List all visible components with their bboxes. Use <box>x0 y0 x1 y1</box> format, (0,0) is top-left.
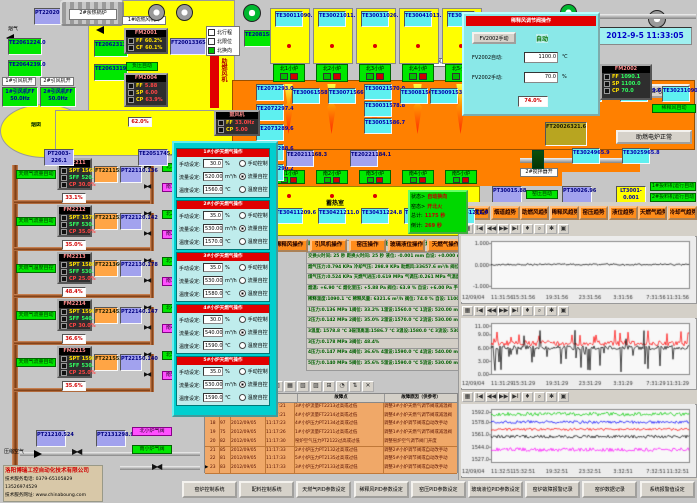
status-value: 269 秒 <box>425 222 442 232</box>
manual-setpoint-input[interactable]: 30.0 <box>203 315 223 324</box>
readout-row: 5压力:0.140 MPa 5阀位: 35.6% 5温设:1590.0 ℃ 5流… <box>306 359 463 371</box>
pt2003-tag: PT2003-226.1 <box>44 149 74 166</box>
gas-valve-output: 35.6% <box>62 381 86 391</box>
gas-valve-south[interactable]: ▶◀ <box>144 184 149 190</box>
radio-temp-auto[interactable]: 温度自控 <box>239 342 268 349</box>
radio-flow-auto[interactable]: 流量自控 <box>239 329 268 336</box>
chart-toolbar-icon[interactable]: ⌕ <box>534 306 545 316</box>
temp-setpoint-input[interactable]: 1560.0 <box>203 185 223 194</box>
chart-toolbar-icon[interactable]: ◀◀ <box>486 306 497 316</box>
gas-pt-tag: PT22130.178 <box>120 260 142 277</box>
port-label: 北4小炉 <box>403 65 433 73</box>
status-key: 总计: <box>411 212 423 222</box>
flow-setpoint-input[interactable]: 540.00 <box>203 328 223 337</box>
te-tag: TE2064239.0 <box>8 60 42 77</box>
chart-toolbar-icon[interactable]: ▣ <box>558 392 569 402</box>
legend-indicator <box>208 38 215 45</box>
gas-valve-north[interactable]: ▶◀ <box>144 305 149 311</box>
legend-label: 北行程 <box>217 29 232 36</box>
trend-button[interactable]: 冷却气趋势 <box>668 206 697 220</box>
radio-manual-control[interactable]: 手动控制 <box>239 316 268 323</box>
temp-setpoint-input[interactable]: 1590.0 <box>203 341 223 350</box>
compressed-air-pipe <box>20 452 200 456</box>
gas-ft-tag: FT2211557.04 <box>94 166 118 183</box>
reversal-status-panel: 状态> 自动换向 窑态> 开北火 总计: 1175 秒 倒计: 269 秒 <box>408 190 468 234</box>
nav-button[interactable]: 稀释风PID参数设定 <box>354 481 409 498</box>
chart-toolbar-icon[interactable]: ◀◀ <box>486 392 497 402</box>
status-key: 倒计: <box>411 222 423 232</box>
radio-manual-control[interactable]: 手动控制 <box>239 368 268 375</box>
burner-popup-section: 1#小炉天燃气操作 手动设定: 30.0 % 流量设定: 520.00 m³/h… <box>176 148 270 198</box>
lt3001-tag: LT3001-0.001 <box>616 186 646 203</box>
nav-button[interactable]: 窑炉控制系统 <box>182 481 237 498</box>
radio-flow-auto[interactable]: 流量自控 <box>239 381 268 388</box>
fm2004-controller: FM2004 FF5.88SP6.00CP63.9% <box>124 73 168 107</box>
port-indicator-green[interactable] <box>324 177 331 183</box>
chart-toolbar-icon[interactable]: ♦ <box>522 392 533 402</box>
alarm-toolbar-icon[interactable]: ▧ <box>297 381 309 392</box>
legend-indicator <box>208 29 215 36</box>
crown-te-tag: TE30081567.5 <box>400 88 428 104</box>
port-indicator-red[interactable] <box>376 73 384 80</box>
feeder-auto-label: 2#投料机运行自动 <box>650 193 696 202</box>
crown-te-tag: TE30031578.8 <box>364 101 392 117</box>
fan-run-label: 1#引风机开 <box>2 77 36 86</box>
alarm-header-fault: 故障点 <box>298 394 385 402</box>
flue-damper-position: 62.0% <box>128 117 152 127</box>
air-valve[interactable]: ▶◀ <box>152 463 160 471</box>
compressed-air-label: 压缩空气 <box>4 448 24 455</box>
fan-run-label: 2#引风机开 <box>40 77 74 86</box>
section-title: 5#小炉天燃气操作 <box>177 357 269 365</box>
right-te-tag: TE3024965.9 <box>572 148 600 164</box>
radio-temp-auto[interactable]: 温度自控 <box>239 394 268 401</box>
te2022-tag: TE20221184.1 <box>350 150 378 167</box>
radio-manual-control[interactable]: 手动控制 <box>239 212 268 219</box>
trend-button[interactable]: 烟道趋势 <box>491 206 520 220</box>
air-valve[interactable]: ▶◀ <box>72 448 80 456</box>
fv2002-auto-status: 自动 <box>536 34 548 43</box>
te-tag: TE2061224.0 <box>8 38 42 55</box>
gas-valve-output: 48.4% <box>62 287 86 297</box>
port-indicator-green[interactable] <box>453 177 460 183</box>
chart-toolbar-icon[interactable]: ✱ <box>546 306 557 316</box>
gas-mode-label: 天燃气流量自动 <box>16 311 56 320</box>
chart-toolbar-icon[interactable]: ▶▶ <box>498 224 509 234</box>
chart-toolbar-icon[interactable]: ◀◀ <box>486 224 497 234</box>
chart-toolbar-icon[interactable]: ▶Ⅰ <box>510 392 521 402</box>
chart-toolbar-icon[interactable]: ✱ <box>546 224 557 234</box>
nav-button[interactable]: 窑压PID参数设定 <box>411 481 466 498</box>
gas-fm-controller: FM2212 SPT1570.0 SFF530.00 CP35.0% <box>57 205 92 237</box>
port-label: 北2小炉 <box>317 65 347 73</box>
section-title: 1#小炉天燃气操作 <box>177 149 269 157</box>
nav-button[interactable]: 窑炉数据记录 <box>582 481 637 498</box>
feeder-auto-label: 1#投料机运行自动 <box>650 182 696 191</box>
gas-pt-tag: PT22120.142 <box>120 213 142 230</box>
company-web[interactable]: 技术服务网址: www.chinaboung.com <box>5 492 101 500</box>
alarm-dot <box>330 44 334 48</box>
fm2002-controller: FM2002 FF1090.1SP1100.0CP70.0 <box>600 64 652 100</box>
chimney-label: 烟囱 <box>22 122 50 131</box>
legend-indicator <box>208 47 215 54</box>
dilution-valve-position: 74.0% <box>518 96 548 107</box>
gas-ft-tag: FT2212522.89 <box>94 213 118 230</box>
legend-label: 北换向 <box>217 47 232 54</box>
ops-button[interactable]: 玻璃液位操作 <box>388 239 425 252</box>
radio-manual-control[interactable]: 手动控制 <box>239 264 268 271</box>
alarm-toolbar-icon[interactable]: ⊞ <box>323 381 335 392</box>
alarm-toolbar-icon[interactable]: ▨ <box>310 381 322 392</box>
trend-button[interactable]: 天燃气趋势 <box>638 206 667 220</box>
wall-te-tag: TE2073289.6 <box>256 124 284 141</box>
nav-button[interactable]: 配料控制系统 <box>239 481 294 498</box>
chart-toolbar-icon[interactable]: ⌕ <box>534 224 545 234</box>
gas-mode-label: 天燃气流量自动 <box>16 217 56 226</box>
south-port: 南3小炉 TE30431224.8 <box>356 170 394 234</box>
company-box: 洛阳博瑞工控自动化技术有限公司 技术服务电话: 0379-65105829 13… <box>3 465 103 502</box>
wall-te-tag: TE2071293.0 <box>256 84 284 101</box>
chart-toolbar-icon[interactable]: ▣ <box>558 224 569 234</box>
gas-valve-output: 33.1% <box>62 193 86 203</box>
chart-toolbar-icon[interactable]: ▶Ⅰ <box>510 306 521 316</box>
port-indicator-green[interactable] <box>366 73 374 80</box>
gas-mode-label: 天燃气温度自控 <box>16 264 56 273</box>
fv2002-manual-button[interactable]: FV2002手动 <box>472 32 516 44</box>
ops-button[interactable]: 窑压操作 <box>349 239 386 252</box>
crown-te-tag: TE30051586.7 <box>364 118 392 134</box>
port-indicator-green[interactable] <box>410 177 417 183</box>
combustion-fan-bar <box>210 56 219 108</box>
alarm-header-reason: 故障原因（供参考） <box>385 394 457 402</box>
trend-chart-temperature[interactable] <box>461 404 695 476</box>
popup-header: 稀释风调节阀操作 <box>466 16 596 26</box>
alarm-dot <box>373 44 377 48</box>
fan-icon <box>148 4 165 21</box>
gas-ft-tag: FT2215534.58 <box>94 354 118 371</box>
combustion-fan-label: 助燃风机 <box>220 58 228 108</box>
gas-valve-output: 36.6% <box>62 334 86 344</box>
radio-flow-auto[interactable]: 流量自控 <box>239 173 268 180</box>
te2051-tag: TE2051745.7 <box>138 149 168 166</box>
stirrer-run-label: 2#搅拌器开 <box>520 168 558 177</box>
flue-gas-label: 烟气 <box>2 26 24 34</box>
radio-flow-auto[interactable]: 流量自控 <box>239 225 268 232</box>
alarm-dot <box>373 194 377 198</box>
stirrer-icon <box>532 150 544 169</box>
port-indicator-green[interactable] <box>452 73 460 80</box>
status-key: 窑态> <box>411 203 425 213</box>
right-te-tag: TE30231090.1 <box>662 86 690 102</box>
gas-valve-north[interactable]: ▶◀ <box>144 258 149 264</box>
air-valve-state-label: 南小炉气阀 <box>132 445 172 454</box>
temp-setpoint-input[interactable]: 1590.0 <box>203 393 223 402</box>
neg-pressure-auto-label: 负压自动 <box>126 62 158 71</box>
ft2002-tag: FT20026321.6 <box>545 122 587 146</box>
popup-field-input[interactable]: 1100.0 <box>524 52 558 63</box>
legend-label: 北限位 <box>217 38 232 45</box>
te-tag: TE2062313.0 <box>94 40 128 57</box>
chart-toolbar-icon[interactable]: ▶▶ <box>498 306 509 316</box>
north-port: TE30041013.3 北4小炉 <box>399 8 437 134</box>
soft-water-arrow <box>92 26 104 34</box>
gas-ft-tag: FT2214532.44 <box>94 307 118 324</box>
chart-toolbar-icon[interactable]: ♦ <box>522 224 533 234</box>
alarm-row[interactable]: ▶ 23 83 2012/09/05 11:17:33 3#小炉压力PT2133… <box>205 464 457 474</box>
gas-valve-south[interactable]: ▶◀ <box>144 325 149 331</box>
burner-popup-section: 3#小炉天燃气操作 手动设定: 35.0 % 流量设定: 530.00 m³/h… <box>176 252 270 302</box>
port-indicator-red[interactable] <box>462 177 469 183</box>
company-phone: 技术服务电话: 0379-65105829 13526974529 <box>5 476 101 493</box>
datetime-display: 2012-9-5 11:33:05 <box>598 27 692 45</box>
gas-fm-controller: FM2215 SPT1590.0 SFF530.00 CP25.0% <box>57 346 92 378</box>
alarm-toolbar-icon[interactable]: ▦ <box>284 381 296 392</box>
fan-icon <box>648 10 666 28</box>
trend-button[interactable]: 液位趋势 <box>609 206 638 220</box>
chart-toolbar-icon[interactable]: Ⅰ◀ <box>474 392 485 402</box>
id-fan-box: 2#引风机FF 50.0Hz <box>40 87 76 107</box>
status-value: 1175 秒 <box>425 212 446 222</box>
port-indicator-red[interactable] <box>376 177 383 183</box>
id-fan-box: 1#引风机FF 50.0Hz <box>2 87 38 107</box>
ops-button[interactable]: 引风机操作 <box>310 239 347 252</box>
port-indicator-green[interactable] <box>409 73 417 80</box>
chart-toolbar-icon[interactable]: ▶▶ <box>498 392 509 402</box>
pt2131-tag: PT2131298.9 <box>96 430 126 447</box>
chart-toolbar-icon[interactable]: ▶Ⅰ <box>510 224 521 234</box>
alarm-dot <box>287 194 291 198</box>
alarm-toolbar-icon[interactable]: ✕ <box>362 381 374 392</box>
popup-field-row: FV2002手动: 70.0 % <box>472 72 596 86</box>
chart-toolbar-icon[interactable]: ▦ <box>462 392 473 402</box>
blower-controller: 鼓风机 FF33.0HzCP5.00 <box>214 110 260 136</box>
alarm-dot <box>287 44 291 48</box>
temp-setpoint-input[interactable]: 1570.0 <box>203 237 223 246</box>
burner-popup-section: 4#小炉天燃气操作 手动设定: 30.0 % 流量设定: 540.00 m³/h… <box>176 304 270 354</box>
chart-toolbar-icon[interactable]: ♦ <box>522 306 533 316</box>
port-indicator-red[interactable] <box>419 73 427 80</box>
trend-chart-level[interactable] <box>461 236 695 302</box>
port-indicator-red[interactable] <box>333 177 340 183</box>
alarm-dot <box>416 44 420 48</box>
flow-setpoint-input[interactable]: 530.00 <box>203 224 223 233</box>
status-value: 自动换向 <box>427 193 447 203</box>
electric-furnace-button[interactable]: 助燃电炉正常 <box>616 130 692 144</box>
fm2001-controller: FM2001 FF60.2%CF60.1% <box>124 28 168 54</box>
alarm-toolbar-icon[interactable]: ⇅ <box>349 381 361 392</box>
fan-icon <box>176 4 193 21</box>
chart-toolbar-icon[interactable]: ▣ <box>558 306 569 316</box>
port-indicator-green[interactable] <box>367 177 374 183</box>
air-valve-state-label: 北小炉气阀 <box>132 427 172 436</box>
gas-valve-south[interactable]: ▶◀ <box>144 372 149 378</box>
ft2001-tag: FT200133657.6 <box>170 38 206 55</box>
chart-toolbar-icon[interactable]: ▦ <box>462 306 473 316</box>
gas-fm-controller: FM2213 SPT1580.0 SFF530.00 CP25.0% <box>57 252 92 284</box>
crown-te-tag: TE30071566.2 <box>328 88 356 104</box>
radio-manual-control[interactable]: 手动控制 <box>239 160 268 167</box>
crown-te-tag: TE30021570.0 <box>364 84 392 100</box>
gas-pt-tag: PT22110.136 <box>120 166 142 183</box>
dilution-auto-label: 稀释风自动 <box>652 104 696 113</box>
wall-te-tag: TE2072297.4 <box>256 104 284 121</box>
nav-button[interactable]: 天燃气PID参数设定 <box>296 481 351 498</box>
port-indicator-red[interactable] <box>333 73 341 80</box>
trend-button[interactable]: 窑压趋势 <box>579 206 608 220</box>
burner-popup-section: 2#小炉天燃气操作 手动设定: 35.0 % 流量设定: 530.00 m³/h… <box>176 200 270 250</box>
temp-setpoint-input[interactable]: 1580.0 <box>203 289 223 298</box>
port-indicator-red[interactable] <box>290 73 298 80</box>
gas-mode-label: 天燃气流量自动 <box>16 358 56 367</box>
flow-setpoint-input[interactable]: 530.00 <box>203 380 223 389</box>
status-value: 开北火 <box>427 203 442 213</box>
section-title: 3#小炉天燃气操作 <box>177 253 269 261</box>
reversal-legend: 北行程 北限位 北换向 <box>206 26 240 56</box>
flow-setpoint-input[interactable]: 530.00 <box>203 276 223 285</box>
radio-flow-auto[interactable]: 流量自控 <box>239 277 268 284</box>
port-indicator-green[interactable] <box>323 73 331 80</box>
company-name: 洛阳博瑞工控自动化技术有限公司 <box>5 467 101 476</box>
status-key: 状态> <box>411 193 425 203</box>
gas-valve-south[interactable]: ▶◀ <box>144 231 149 237</box>
chart-toolbar-icon[interactable]: ⌕ <box>534 392 545 402</box>
gas-valve-north[interactable]: ▶◀ <box>144 352 149 358</box>
te2021-tag: TE20211168.3 <box>286 150 314 167</box>
manual-setpoint-input[interactable]: 35.0 <box>203 367 223 376</box>
gas-valve-output: 35.0% <box>62 240 86 250</box>
gas-valve-north[interactable]: ▶◀ <box>144 211 149 217</box>
flow-setpoint-input[interactable]: 520.00 <box>203 172 223 181</box>
gas-valve-south[interactable]: ▶◀ <box>144 278 149 284</box>
pt3002-tag: PT30026.96 <box>562 186 592 203</box>
nav-button[interactable]: 窑炉故障报警记录 <box>525 481 580 498</box>
manual-setpoint-input[interactable]: 35.0 <box>203 211 223 220</box>
radio-temp-auto[interactable]: 温度自控 <box>239 290 268 297</box>
nav-button[interactable]: 系统报警值设定 <box>640 481 695 498</box>
alarm-toolbar-icon[interactable]: ◔ <box>336 381 348 392</box>
popup-field-input[interactable]: 70.0 <box>524 72 558 83</box>
regenerator-label-south: 蓄热室 <box>326 198 344 207</box>
chart-toolbar-icon[interactable]: ✱ <box>546 392 557 402</box>
chart-toolbar-icon[interactable]: Ⅰ◀ <box>474 306 485 316</box>
crown-te-tag: TE30061558.0 <box>292 88 320 104</box>
burner-popup-section: 5#小炉天燃气操作 手动设定: 35.0 % 流量设定: 530.00 m³/h… <box>176 356 270 406</box>
trend-button[interactable]: 稀释风趋势 <box>550 206 579 220</box>
popup-field-row: FV2002自动: 1100.0 ℃ <box>472 52 596 66</box>
manual-setpoint-input[interactable]: 35.0 <box>203 263 223 272</box>
radio-temp-auto[interactable]: 温度自控 <box>239 186 268 193</box>
port-indicator-green[interactable] <box>280 73 288 80</box>
port-label: 北3小炉 <box>360 65 390 73</box>
scada-kiln-overview: 烟囱 烟气 PT22020.794 软化水 1#余热锅炉 2#余热锅炉 TE20… <box>0 0 697 503</box>
nav-button[interactable]: 玻璃液位PID参数设定 <box>468 481 523 498</box>
north-port: TE30021011.7 北2小炉 <box>313 8 351 134</box>
gas-ft-tag: FT2213605.19 <box>94 260 118 277</box>
crown-te-tag: TE30091538.5 <box>430 88 458 104</box>
radio-temp-auto[interactable]: 温度自控 <box>239 238 268 245</box>
gas-pt-tag: PT22140.147 <box>120 307 142 324</box>
pt2121-tag: PT21210.524 <box>36 430 66 447</box>
port-indicator-red[interactable] <box>290 177 297 183</box>
pt3001-tag: PT30015.88 <box>492 186 522 203</box>
manual-setpoint-input[interactable]: 30.0 <box>203 159 223 168</box>
trend-button[interactable]: 助燃风趋势 <box>520 206 549 220</box>
trend-chart-pressure[interactable] <box>461 318 695 388</box>
te-tag: TE2063319.0 <box>94 64 128 81</box>
gas-fm-controller: FM2214 SPT1590.0 SFF540.00 CP30.0% <box>57 299 92 331</box>
gas-mode-label: 天燃气流量自动 <box>16 170 56 179</box>
fan-icon <box>243 4 261 22</box>
port-indicator-red[interactable] <box>419 177 426 183</box>
section-title: 2#小炉天燃气操作 <box>177 201 269 209</box>
section-title: 4#小炉天燃气操作 <box>177 305 269 313</box>
gas-pt-tag: PT22150.140 <box>120 354 142 371</box>
port-label: 北1小炉 <box>274 65 304 73</box>
waste-heat-boiler: 2#余热锅炉 <box>60 0 124 26</box>
air-arrow <box>34 450 46 458</box>
kiln-pressure-auto-label: 窑压自动 <box>526 190 558 199</box>
right-te-tag: TE3025965.8 <box>622 148 650 164</box>
